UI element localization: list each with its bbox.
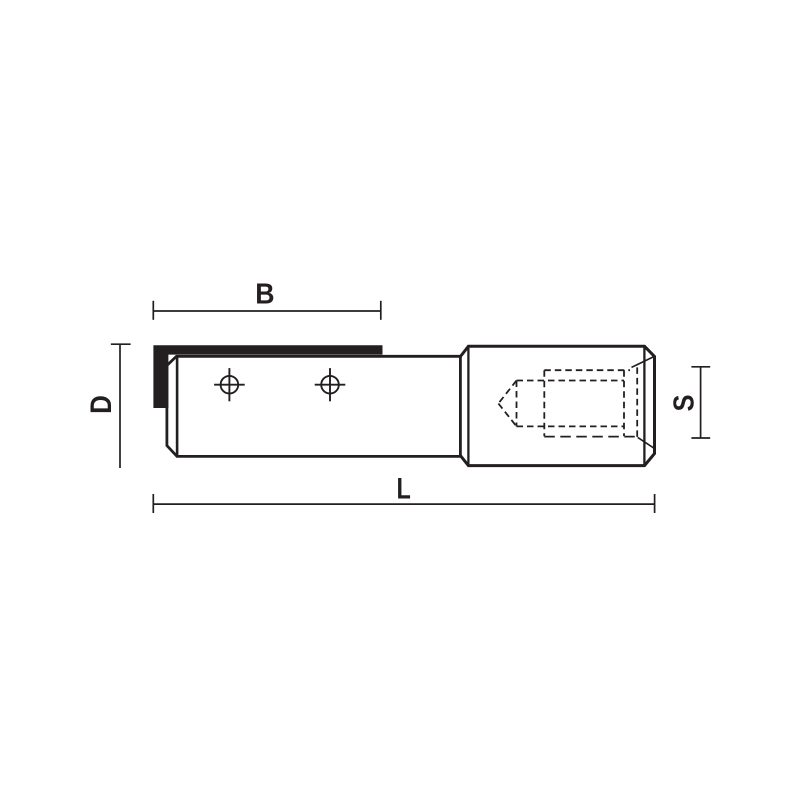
svg-text:L: L xyxy=(397,472,411,505)
svg-text:S: S xyxy=(667,395,700,412)
svg-text:D: D xyxy=(84,395,117,414)
svg-text:B: B xyxy=(255,278,274,310)
